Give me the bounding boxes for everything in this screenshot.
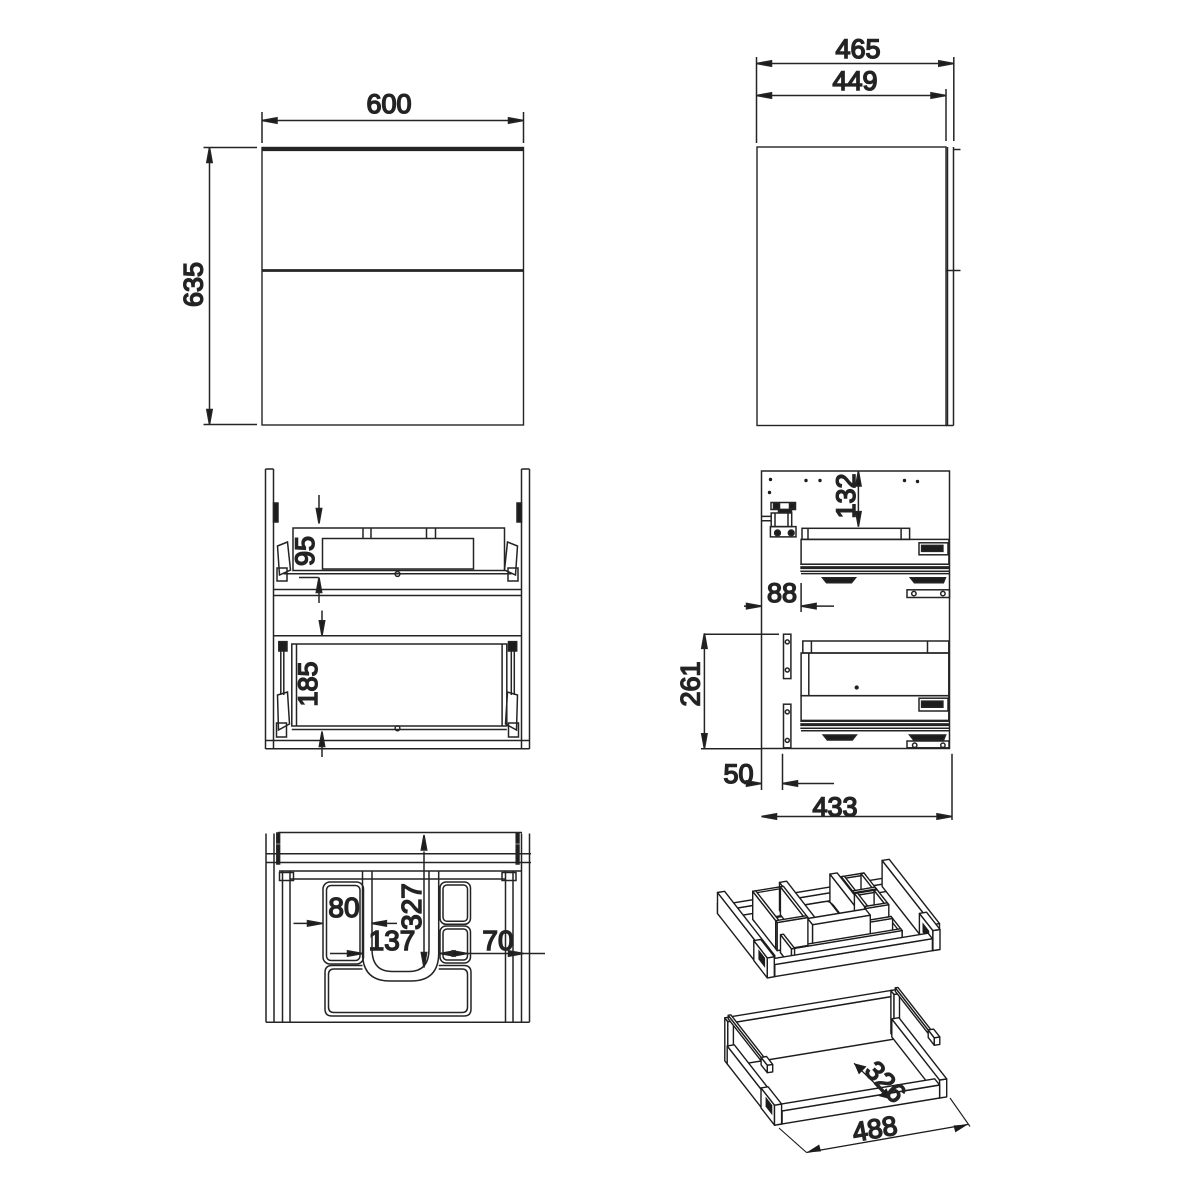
svg-text:433: 433 (812, 792, 857, 822)
svg-text:449: 449 (832, 66, 877, 96)
svg-text:80: 80 (328, 892, 359, 923)
svg-text:261: 261 (676, 661, 706, 706)
svg-text:465: 465 (835, 34, 880, 64)
svg-text:95: 95 (290, 536, 320, 566)
svg-text:70: 70 (482, 925, 513, 956)
svg-text:327: 327 (396, 883, 427, 930)
svg-text:635: 635 (179, 262, 209, 307)
svg-text:132: 132 (831, 473, 861, 518)
svg-text:137: 137 (369, 925, 416, 956)
svg-text:50: 50 (723, 759, 753, 789)
svg-text:600: 600 (366, 89, 411, 119)
svg-text:185: 185 (293, 661, 323, 706)
svg-text:88: 88 (767, 578, 797, 608)
